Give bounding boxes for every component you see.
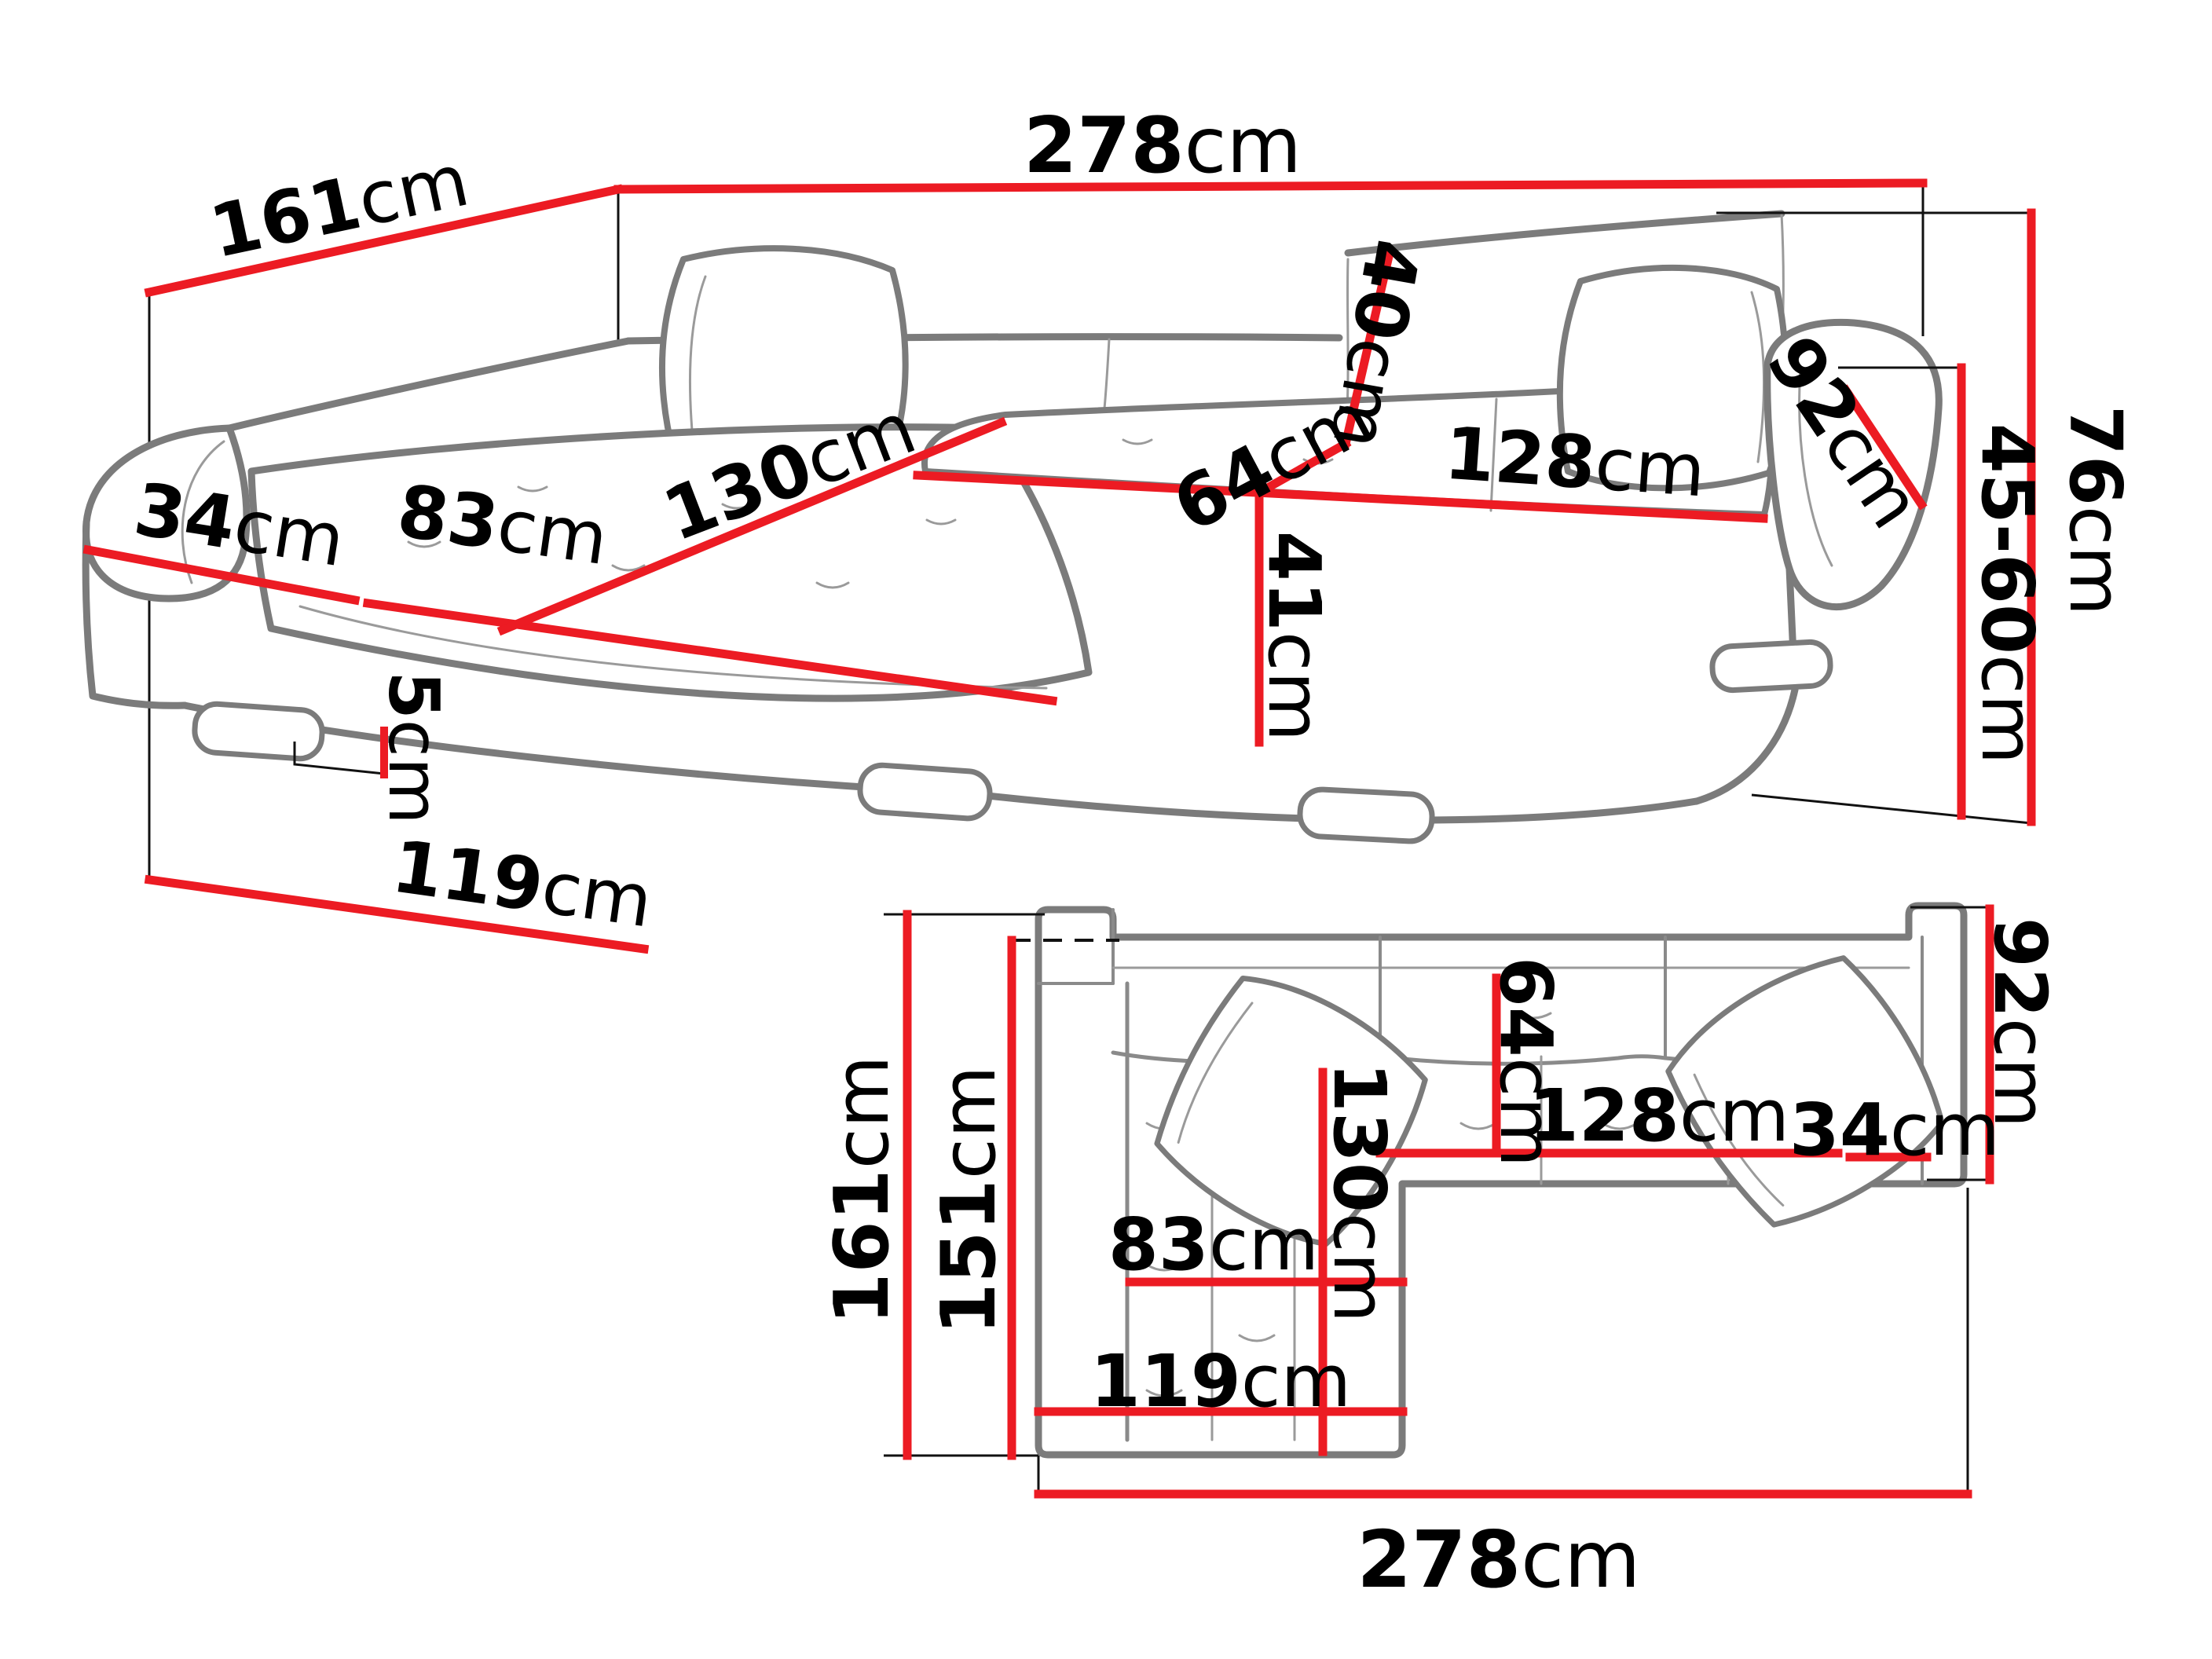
dim-label-plan-34: 34cm bbox=[1789, 1088, 2000, 1172]
perspective-sofa-sketch bbox=[86, 214, 1939, 842]
dim-value: 76 bbox=[2054, 405, 2138, 506]
dim-unit: cm bbox=[1253, 632, 1337, 742]
dim-value: 128 bbox=[1529, 1074, 1679, 1158]
dim-unit: cm bbox=[1592, 421, 1708, 513]
dim-unit: cm bbox=[2054, 506, 2138, 616]
backrest-division-2 bbox=[1104, 339, 1109, 408]
dim-unit: cm bbox=[374, 720, 455, 825]
dim-label-height-45-60: 45-60cm bbox=[1966, 423, 2050, 764]
dim-value: 83 bbox=[1108, 1203, 1209, 1287]
dim-unit: cm bbox=[1890, 1088, 2000, 1172]
perspective-view: 161cm 278cm 34cm 83cm 130cm 64cm 40cm 12… bbox=[86, 101, 2137, 949]
dim-label-plan-119: 119cm bbox=[1090, 1339, 1351, 1423]
dim-label-plan-278: 278cm bbox=[1357, 1514, 1640, 1606]
plan-view: 161cm 151cm 130cm 64cm 92cm 128cm 34cm 8… bbox=[819, 906, 2063, 1606]
dim-value: 5 bbox=[374, 671, 455, 719]
dim-unit: cm bbox=[926, 1065, 1013, 1179]
dim-value: 92 bbox=[1979, 917, 2063, 1018]
foot-far-right bbox=[1712, 641, 1832, 691]
dim-value: 45-60 bbox=[1966, 423, 2050, 654]
sofa-dimension-diagram: 161cm 278cm 34cm 83cm 130cm 64cm 40cm 12… bbox=[0, 0, 2212, 1659]
dim-value: 119 bbox=[1090, 1339, 1241, 1423]
dim-value: 278 bbox=[1024, 101, 1185, 191]
dim-value: 41 bbox=[1253, 531, 1337, 632]
dim-value: 151 bbox=[926, 1179, 1013, 1335]
foot-front-right bbox=[1299, 789, 1434, 843]
chaise-backrest-top-edge bbox=[229, 341, 628, 428]
dim-unit: cm bbox=[493, 482, 613, 580]
dim-value: 130 bbox=[1318, 1062, 1402, 1213]
dim-label-plan-130: 130cm bbox=[1318, 1062, 1402, 1323]
dim-value: 34 bbox=[1789, 1088, 1890, 1172]
dim-label-height-76: 76cm bbox=[2054, 405, 2138, 616]
dim-label-seatheight-41: 41cm bbox=[1253, 531, 1337, 742]
dim-unit: cm bbox=[1521, 1514, 1640, 1606]
dim-value: 40 bbox=[1335, 233, 1436, 347]
foot-front-left bbox=[193, 702, 324, 760]
dim-unit: cm bbox=[229, 482, 350, 583]
dim-value: 161 bbox=[203, 160, 368, 274]
foot-front-center bbox=[859, 764, 991, 819]
dim-unit: cm bbox=[1209, 1203, 1319, 1287]
dim-unit: cm bbox=[1966, 654, 2050, 764]
dim-value: 83 bbox=[393, 468, 504, 566]
dim-label-plan-128: 128cm bbox=[1529, 1074, 1789, 1158]
dim-unit: cm bbox=[537, 845, 657, 943]
dim-unit: cm bbox=[1318, 1213, 1402, 1323]
dim-unit: cm bbox=[1679, 1074, 1789, 1158]
dim-value: 64 bbox=[1485, 957, 1569, 1057]
dim-value: 128 bbox=[1442, 411, 1599, 505]
dim-label-plan-161: 161cm bbox=[819, 1055, 906, 1324]
dim-unit: cm bbox=[1317, 332, 1419, 456]
dim-value: 278 bbox=[1357, 1514, 1521, 1606]
dim-value: 161 bbox=[819, 1169, 906, 1324]
dim-label-plan-151: 151cm bbox=[926, 1065, 1013, 1335]
dim-unit: cm bbox=[819, 1055, 906, 1169]
dim-label-plan-83: 83cm bbox=[1108, 1203, 1319, 1287]
dim-label-feet-5: 5cm bbox=[374, 671, 455, 824]
dim-unit: cm bbox=[1241, 1339, 1351, 1423]
dim-label-width-278: 278cm bbox=[1024, 101, 1302, 191]
floor-reference-line bbox=[1752, 795, 2031, 823]
dim-value: 34 bbox=[129, 467, 241, 566]
dim-label-width-119: 119cm bbox=[387, 824, 657, 943]
dim-unit: cm bbox=[1185, 101, 1302, 191]
